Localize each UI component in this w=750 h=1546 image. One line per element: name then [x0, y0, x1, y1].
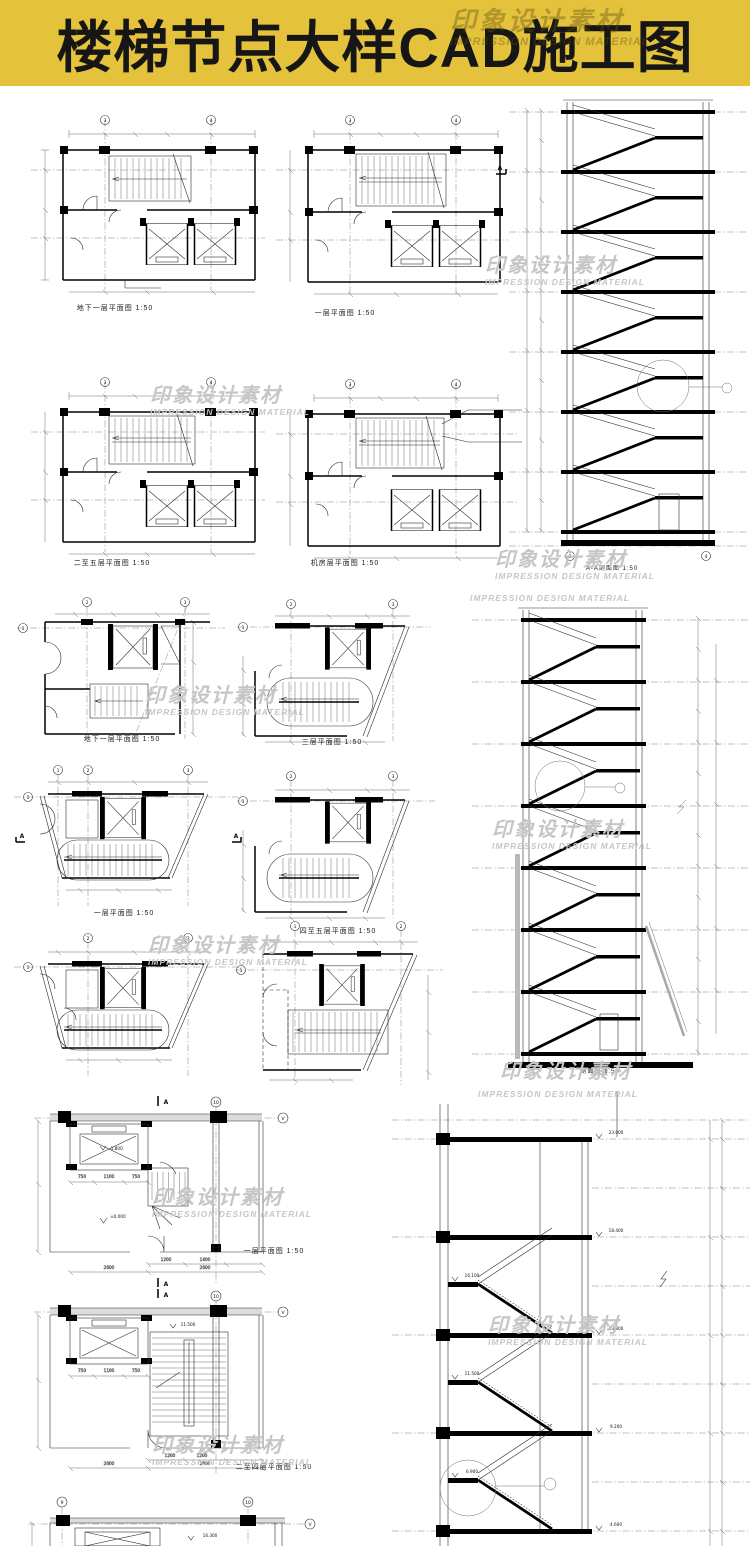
section-marker: A: [158, 1096, 169, 1106]
svg-text:1100: 1100: [104, 1368, 115, 1373]
centerlines: [34, 1106, 278, 1284]
bottom-dims: 1200 1200 2600 2600: [36, 1313, 265, 1471]
dimension-chain: [525, 108, 544, 533]
svg-text:9.200: 9.200: [610, 1424, 622, 1429]
svg-text:10: 10: [213, 1100, 219, 1106]
plan-trapezoid-straight-figure: 1 2 1: [233, 920, 448, 1092]
svg-text:18.400: 18.400: [609, 1228, 624, 1233]
svg-text:4: 4: [210, 118, 213, 124]
stair-run: [356, 152, 446, 208]
section-marker: A: [158, 1289, 169, 1299]
retaining-wall: [515, 854, 520, 1059]
walls: [48, 964, 204, 1048]
plan-basement-1-drawing: 3 4: [25, 110, 270, 305]
svg-text:1: 1: [242, 625, 245, 631]
svg-text:13.800: 13.800: [609, 1326, 624, 1331]
floor-slabs: [508, 618, 693, 1068]
side-room: [66, 970, 98, 1008]
svg-text:3: 3: [392, 602, 395, 608]
watermark-cn: 印象设计素材: [450, 8, 649, 34]
elevator-shaft: [70, 1318, 148, 1364]
svg-text:1: 1: [242, 799, 245, 805]
grid-bubble: 3: [389, 600, 398, 609]
grid-bubble: 2: [287, 772, 296, 781]
svg-text:4.600: 4.600: [610, 1522, 622, 1527]
grid-bubble: 3: [184, 934, 193, 943]
svg-text:750: 750: [78, 1368, 86, 1373]
grid-bubble: 2: [84, 934, 93, 943]
stair-section-3-drawing: 23.000 18.400 13.800 9.200 4.600 16.100 …: [392, 1092, 750, 1546]
svg-text:2: 2: [87, 936, 90, 942]
caption-section-s1: A-A剖面图 1:50: [586, 563, 638, 572]
walls: [255, 800, 405, 912]
svg-text:3: 3: [392, 774, 395, 780]
grid-bubble: V: [278, 1307, 288, 1317]
plan-machine-room-figure: 3 4: [272, 374, 522, 569]
detail-circle: [440, 1460, 556, 1516]
elevator-shaft: [195, 486, 236, 528]
svg-text:-1.800: -1.800: [109, 1146, 123, 1151]
stair-flights: [478, 1228, 552, 1529]
stair-section-2-drawing: 1: [468, 604, 750, 1076]
stair-section-3-figure: 23.000 18.400 13.800 9.200 4.600 16.100 …: [392, 1092, 750, 1546]
svg-text:3: 3: [187, 936, 190, 942]
caption-plan-b2: 机房层平面图 1:50: [311, 558, 380, 568]
grid-bubble: 10: [211, 1291, 221, 1301]
plan-floor1-drawing: 3 4 A: [272, 110, 512, 315]
stair-section-1-figure: 3 4: [505, 96, 750, 566]
plan-floor1-figure: 3 4 A: [272, 110, 512, 315]
svg-text:±0.000: ±0.000: [110, 1214, 126, 1219]
grid-bubble: 4: [702, 552, 711, 561]
plan-floors2to5-drawing: 3 4: [25, 372, 270, 567]
stair-run: [109, 414, 195, 466]
caption-plan-a1: 地下一层平面图 1:50: [77, 303, 154, 313]
svg-text:3: 3: [104, 118, 107, 124]
plan-floors4to5-figure: 2 3 1: [235, 768, 440, 926]
dimension-lines: [288, 394, 498, 561]
plan-floors4to5-drawing: 2 3 1: [235, 768, 440, 926]
svg-text:A: A: [164, 1099, 169, 1106]
grid-bubble: 1: [291, 922, 300, 931]
hoist-area: [161, 626, 180, 664]
svg-text:A: A: [164, 1281, 169, 1288]
walls: [50, 1121, 263, 1252]
banner-watermark: 印象设计素材 IMPRESSION DESIGN MATERIAL: [450, 8, 649, 48]
level-label: 23.000: [596, 1130, 624, 1138]
shaft-dims: 750 1100 750: [68, 1368, 151, 1379]
stair-section-2-figure: 1: [468, 604, 750, 1076]
grid-bubble: V: [305, 1519, 315, 1529]
ramp-line: [646, 800, 687, 1036]
plan-trapezoid-straight-drawing: 1 2 1: [233, 920, 448, 1092]
grid-bubble: 10: [211, 1097, 221, 1107]
svg-text:4: 4: [705, 554, 708, 560]
svg-text:23.000: 23.000: [609, 1130, 624, 1135]
watermark-en: IMPRESSION DESIGN MATERIAL: [450, 37, 649, 48]
svg-text:3: 3: [349, 382, 352, 388]
doors: [40, 974, 76, 1020]
level-label: ±0.000: [100, 1214, 126, 1223]
floor-slabs: [436, 1133, 592, 1537]
grid-bubble: 4: [207, 378, 216, 387]
elevator-shaft: [325, 801, 371, 843]
svg-text:3: 3: [187, 768, 190, 774]
svg-text:4: 4: [455, 382, 458, 388]
doors: [148, 1236, 164, 1252]
doors: [71, 458, 121, 512]
svg-text:9: 9: [61, 1500, 64, 1506]
svg-text:1200: 1200: [197, 1453, 208, 1458]
watermark: IMPRESSION DESIGN MATERIAL: [470, 592, 630, 603]
walls: [50, 1315, 263, 1448]
doors: [269, 841, 282, 854]
svg-text:3: 3: [104, 380, 107, 386]
grid-bubble: 3: [101, 378, 110, 387]
break-mark: [660, 1271, 667, 1287]
grid-bubble: 3: [566, 552, 575, 561]
plan-trapezoid-upper-drawing: 2 3 1: [12, 932, 247, 1084]
bottom-dims: 1200 1400 2600 2600: [36, 1119, 265, 1275]
svg-text:750: 750: [132, 1174, 140, 1179]
dimension-lines: [43, 392, 255, 557]
elevator-shaft: [147, 224, 188, 266]
svg-text:2600: 2600: [200, 1265, 211, 1270]
caption-plan-a2: 一层平面图 1:50: [315, 308, 376, 318]
elevator-shaft: [440, 490, 481, 532]
svg-text:3: 3: [184, 600, 187, 606]
svg-text:1: 1: [294, 924, 297, 930]
grid-bubble: 10: [243, 1497, 253, 1507]
dimension-lines: [269, 940, 431, 1083]
shaft-dims: 750 1100 750: [68, 1174, 151, 1185]
svg-text:1200: 1200: [165, 1453, 176, 1458]
plan-floor1-trapezoid-figure: 1 2 3 1 A A: [12, 764, 247, 914]
plan-partial-bottom-figure: 9 10 V 16.300: [20, 1492, 360, 1546]
grid-bubble: 2: [83, 598, 92, 607]
svg-text:3: 3: [569, 554, 572, 560]
side-room: [66, 800, 98, 838]
grid-bubble: 3: [346, 380, 355, 389]
svg-text:10: 10: [245, 1500, 251, 1506]
svg-text:750: 750: [78, 1174, 86, 1179]
svg-text:2: 2: [86, 600, 89, 606]
columns: [60, 408, 258, 488]
svg-text:4: 4: [455, 118, 458, 124]
svg-text:2: 2: [87, 768, 90, 774]
caption-plan-d2: 四至五层平面图 1:50: [300, 926, 377, 936]
elevator-shaft: [440, 226, 481, 268]
plan-f1-figure: A A 10 V -1.800 750 1100 750 ±0.000 1200…: [30, 1094, 300, 1289]
svg-text:A: A: [20, 833, 25, 840]
level-label: 16.100: [452, 1273, 480, 1281]
grid-bubble: 2: [287, 600, 296, 609]
grid-bubble: 1: [54, 766, 63, 775]
grid-bubble: 3: [389, 772, 398, 781]
level-label: 11.500: [452, 1371, 480, 1379]
walls: [255, 626, 405, 736]
grid-bubble: 3: [101, 116, 110, 125]
level-label: 18.400: [596, 1228, 624, 1236]
svg-text:V: V: [281, 1310, 285, 1316]
elevator-shaft: [392, 490, 433, 532]
svg-text:1: 1: [27, 965, 30, 971]
caption-section-s2: 剖面图 1:50: [580, 1066, 619, 1075]
grid-bubble: 9: [57, 1497, 67, 1507]
caption-plan-d1: 一层平面图 1:50: [94, 908, 155, 918]
title-banner: 印象设计素材 IMPRESSION DESIGN MATERIAL 楼梯节点大样…: [0, 0, 750, 86]
doors: [263, 984, 277, 1046]
centerlines: [28, 1507, 304, 1546]
level-label: 6.900: [452, 1469, 478, 1477]
stair-run: [57, 1010, 169, 1050]
elevator-shaft: [100, 797, 146, 839]
dims: [30, 1521, 35, 1546]
svg-text:1: 1: [57, 768, 60, 774]
doors: [316, 462, 366, 516]
svg-text:A: A: [498, 165, 503, 172]
plan-floors2to5-figure: 3 4: [25, 372, 270, 567]
level-lines: [392, 1120, 750, 1531]
svg-text:1200: 1200: [161, 1257, 172, 1262]
elevator-shaft: [100, 967, 146, 1009]
centerlines: [237, 608, 430, 741]
svg-text:V: V: [308, 1522, 312, 1528]
shaft-columns: [385, 220, 485, 228]
grid-bubble: 2: [397, 922, 406, 931]
caption-plan-c1: 地下一层平面图 1:50: [84, 734, 161, 744]
elevator-shaft: [319, 964, 365, 1006]
doors: [45, 642, 61, 718]
svg-text:6.900: 6.900: [466, 1469, 478, 1474]
section-marker: A: [16, 833, 25, 842]
elevator-shaft: [325, 627, 371, 669]
slant-walls: [40, 964, 208, 1048]
slant-walls: [40, 794, 208, 878]
level-label: 11.500: [170, 1322, 196, 1328]
svg-text:1: 1: [27, 795, 30, 801]
level-lines: [472, 620, 748, 1054]
elevator-shaft: [147, 486, 188, 528]
stair-run: [90, 684, 148, 718]
plan-floor3-figure: 2 3 1: [235, 596, 435, 746]
svg-text:2: 2: [400, 924, 403, 930]
svg-text:2600: 2600: [104, 1265, 115, 1270]
grid-bubble: 4: [452, 380, 461, 389]
svg-text:11.500: 11.500: [465, 1371, 480, 1376]
hatched-wall: [50, 1308, 262, 1315]
dimension-lines: [41, 130, 255, 295]
caption-plan-f1: 一层平面图 1:50: [244, 1246, 305, 1256]
svg-text:2600: 2600: [104, 1461, 115, 1466]
plan-trapezoid-upper-figure: 2 3 1: [12, 932, 247, 1084]
level-label: 4.600: [596, 1522, 622, 1530]
svg-text:1: 1: [22, 626, 25, 632]
svg-text:4: 4: [210, 380, 213, 386]
level-label: 16.300: [188, 1533, 218, 1540]
elevator-shaft: [75, 1528, 160, 1546]
svg-text:2: 2: [290, 774, 293, 780]
plan-partial-bottom-drawing: 9 10 V 16.300: [20, 1492, 360, 1546]
walls: [263, 954, 413, 1070]
elevator-shaft: [108, 624, 158, 670]
svg-text:10: 10: [213, 1294, 219, 1300]
level-label: 13.800: [596, 1326, 624, 1334]
plan-basement-1-figure: 3 4: [25, 110, 270, 305]
grid-bubble: 4: [452, 116, 461, 125]
dashed-walls: [263, 954, 288, 1070]
columns: [58, 1111, 227, 1252]
stair-run: [57, 840, 169, 880]
grid-bubble: 3: [184, 766, 193, 775]
svg-text:11.500: 11.500: [181, 1322, 196, 1327]
walls: [48, 794, 204, 878]
svg-text:V: V: [281, 1116, 285, 1122]
elevator-shaft: -1.800: [70, 1124, 148, 1170]
plan-floor3-drawing: 2 3 1: [235, 596, 435, 746]
columns: [58, 1305, 227, 1448]
caption-plan-b1: 二至五层平面图 1:50: [74, 558, 151, 568]
hatched-wall: [50, 1114, 262, 1121]
plan-basement-small-figure: 2 3 1: [15, 594, 230, 742]
svg-text:1400: 1400: [200, 1257, 211, 1262]
columns: [60, 146, 258, 226]
plan-f2-figure: A 10 V 750 1100 750 11.500 1200 1200 260…: [30, 1288, 300, 1478]
plan-basement-small-drawing: 2 3 1: [15, 594, 230, 742]
grid-bubble: 3: [181, 598, 190, 607]
stair-run: [150, 1332, 228, 1436]
stair-run: [267, 854, 373, 902]
svg-text:1: 1: [240, 968, 243, 974]
plan-f1-drawing: A A 10 V -1.800 750 1100 750 ±0.000 1200…: [30, 1094, 300, 1289]
stair-run: [109, 154, 191, 203]
grid-bubble: 3: [346, 116, 355, 125]
svg-text:2: 2: [290, 602, 293, 608]
section-marker: A: [158, 1278, 169, 1288]
elevator-shaft: [195, 224, 236, 266]
svg-text:16.300: 16.300: [203, 1533, 218, 1538]
grid-bubble: V: [278, 1113, 288, 1123]
level-label: 9.200: [596, 1424, 622, 1432]
grid-bubble: 2: [84, 766, 93, 775]
doors: [269, 665, 282, 678]
stair-run: [356, 416, 444, 470]
dimension-lines: [288, 130, 498, 297]
plan-f2-drawing: A 10 V 750 1100 750 11.500 1200 1200 260…: [30, 1288, 300, 1478]
stair-section-1-drawing: 3 4: [505, 96, 750, 566]
svg-text:A: A: [164, 1292, 169, 1299]
svg-text:1100: 1100: [104, 1174, 115, 1179]
doors: [148, 1430, 166, 1448]
plan-floor1-trapezoid-drawing: 1 2 3 1 A A: [12, 764, 247, 914]
centerlines: [14, 942, 242, 1076]
plan-machine-room-drawing: 3 4: [272, 374, 522, 569]
svg-text:3: 3: [349, 118, 352, 124]
elevator-shaft: [392, 226, 433, 268]
svg-text:2600: 2600: [200, 1461, 211, 1466]
caption-plan-f2: 二至四层平面图 1:50: [236, 1462, 313, 1472]
stair-run: [148, 1162, 188, 1229]
svg-text:750: 750: [132, 1368, 140, 1373]
svg-text:16.100: 16.100: [465, 1273, 480, 1278]
walls: [45, 622, 210, 734]
caption-plan-c2: 三层平面图 1:50: [302, 737, 363, 747]
grid-bubble: 4: [207, 116, 216, 125]
detail-circle: [535, 761, 625, 811]
stair-run: [267, 678, 373, 726]
